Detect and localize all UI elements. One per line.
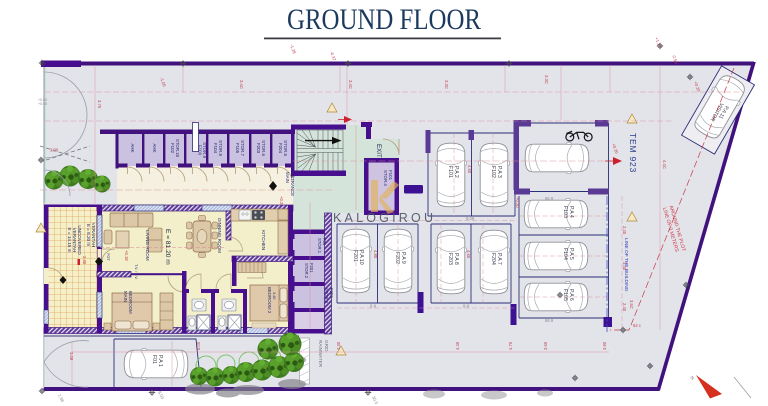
svg-text:4.60: 4.60 xyxy=(466,250,471,259)
svg-text:F203: F203 xyxy=(447,253,453,265)
svg-text:STOR.1: STOR.1 xyxy=(317,238,322,254)
svg-text:KITCHEN: KITCHEN xyxy=(261,230,266,250)
svg-text:+0.20: +0.20 xyxy=(515,197,520,208)
svg-text:AHK: AHK xyxy=(130,143,135,152)
svg-text:4.60: 4.60 xyxy=(467,165,472,174)
svg-text:+0.18: +0.18 xyxy=(124,250,129,261)
svg-text:2.30: 2.30 xyxy=(82,256,87,265)
svg-text:F101: F101 xyxy=(388,170,393,181)
svg-text:3.40: 3.40 xyxy=(272,292,276,299)
svg-text:4.75: 4.75 xyxy=(508,341,513,350)
svg-text:FOT: FOT xyxy=(106,253,110,261)
svg-text:3.00: 3.00 xyxy=(50,148,59,153)
svg-text:4.4C: 4.4C xyxy=(662,160,667,169)
svg-text:3.65: 3.65 xyxy=(543,341,548,350)
svg-text:6.09: 6.09 xyxy=(466,216,475,221)
svg-text:3.4C: 3.4C xyxy=(239,80,244,89)
svg-text:2.40: 2.40 xyxy=(622,226,627,235)
svg-text:8-9: 8-9 xyxy=(370,304,377,309)
svg-text:KALOGIROU: KALOGIROU xyxy=(333,211,437,225)
svg-text:EXIT: EXIT xyxy=(375,144,382,158)
svg-text:F201: F201 xyxy=(352,250,358,262)
svg-text:F01: F01 xyxy=(322,238,327,246)
svg-text:AHK: AHK xyxy=(152,143,157,152)
svg-text:3.40: 3.40 xyxy=(622,262,627,271)
svg-text:E = 14.15 m: E = 14.15 m xyxy=(67,228,72,253)
svg-text:4.30: 4.30 xyxy=(336,341,341,350)
svg-text:3.3C: 3.3C xyxy=(544,75,549,84)
svg-text:F202: F202 xyxy=(394,252,400,264)
svg-text:3.08: 3.08 xyxy=(69,352,74,361)
svg-text:F204: F204 xyxy=(490,253,496,265)
svg-text:F203: F203 xyxy=(256,143,261,154)
svg-text:F201: F201 xyxy=(309,263,314,273)
svg-text:86.9: 86.9 xyxy=(545,196,554,201)
svg-text:3.75: 3.75 xyxy=(97,100,102,109)
svg-text:MAIN: MAIN xyxy=(285,172,290,183)
svg-text:BEDROOM 2: BEDROOM 2 xyxy=(267,287,272,314)
svg-text:GROUND FLOOR: GROUND FLOOR xyxy=(287,3,481,36)
svg-text:STOR.4: STOR.4 xyxy=(383,170,388,186)
svg-text:F104: F104 xyxy=(562,248,568,260)
svg-text:LIVING ROOM: LIVING ROOM xyxy=(145,230,150,261)
svg-text:F101: F101 xyxy=(447,166,453,178)
svg-text:E = 8.20 m: E = 8.20 m xyxy=(86,224,91,247)
svg-text:ENTRANCE: ENTRANCE xyxy=(290,172,295,196)
svg-text:BEDROOM: BEDROOM xyxy=(128,291,133,314)
svg-text:8.00: 8.00 xyxy=(196,341,201,350)
svg-text:STOR.2: STOR.2 xyxy=(304,263,309,279)
svg-text:3.3C: 3.3C xyxy=(444,80,449,89)
svg-text:2.40: 2.40 xyxy=(622,303,627,312)
svg-text:3.90: 3.90 xyxy=(602,341,607,350)
svg-text:4.80: 4.80 xyxy=(373,250,378,259)
svg-text:F102: F102 xyxy=(170,143,175,154)
svg-text:8-9: 8-9 xyxy=(463,304,470,309)
svg-text:DINNING ROOM: DINNING ROOM xyxy=(217,218,222,253)
svg-text:3.4C: 3.4C xyxy=(348,80,353,89)
svg-text:GRID: GRID xyxy=(324,340,329,352)
svg-text:52 c: 52 c xyxy=(633,323,641,328)
svg-text:F202: F202 xyxy=(329,288,334,298)
svg-text:E = 81.20 m: E = 81.20 m xyxy=(164,229,171,265)
svg-text:T.V. / T.V.: T.V. / T.V. xyxy=(134,264,138,279)
svg-text:86.9: 86.9 xyxy=(545,318,554,323)
svg-text:F01: F01 xyxy=(151,355,157,364)
svg-text:MAIN: MAIN xyxy=(123,291,128,302)
svg-text:F104: F104 xyxy=(213,143,218,154)
svg-text:STOR.3: STOR.3 xyxy=(324,288,329,304)
svg-text:TEM 923: TEM 923 xyxy=(628,133,638,173)
svg-text:RAINWATER: RAINWATER xyxy=(318,340,323,368)
svg-text:3.5C: 3.5C xyxy=(629,300,634,309)
svg-text:+0.05: +0.05 xyxy=(38,102,47,106)
svg-text:4.45: 4.45 xyxy=(455,341,460,350)
svg-text:F105: F105 xyxy=(235,143,240,154)
svg-text:F204: F204 xyxy=(278,143,283,154)
